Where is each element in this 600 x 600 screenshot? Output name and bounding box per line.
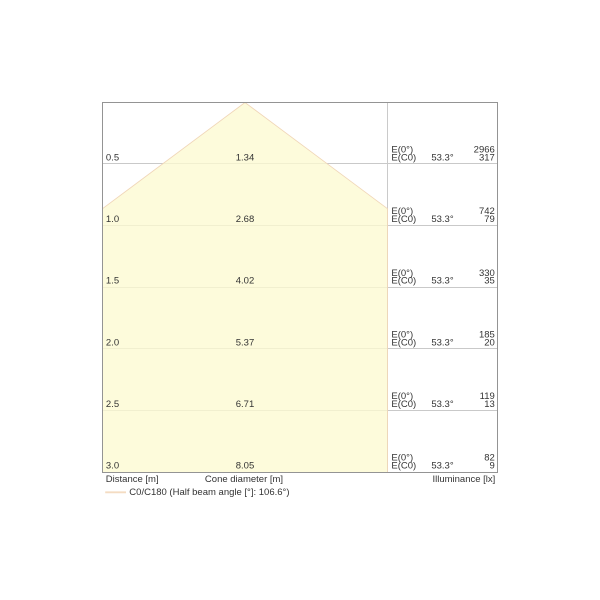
svg-text:2.0: 2.0 bbox=[106, 337, 119, 348]
svg-text:Distance [m]: Distance [m] bbox=[106, 474, 159, 485]
svg-text:1.34: 1.34 bbox=[236, 152, 255, 163]
svg-text:53.3°: 53.3° bbox=[431, 399, 453, 410]
svg-text:E(C0): E(C0) bbox=[391, 214, 416, 225]
svg-text:13: 13 bbox=[484, 399, 495, 410]
svg-text:Cone diameter [m]: Cone diameter [m] bbox=[205, 474, 283, 485]
svg-text:E(C0): E(C0) bbox=[391, 276, 416, 287]
svg-text:79: 79 bbox=[484, 214, 495, 225]
svg-text:1.5: 1.5 bbox=[106, 276, 119, 287]
svg-text:53.3°: 53.3° bbox=[431, 214, 453, 225]
svg-text:53.3°: 53.3° bbox=[431, 152, 453, 163]
svg-text:8.05: 8.05 bbox=[236, 461, 255, 472]
svg-text:6.71: 6.71 bbox=[236, 399, 255, 410]
svg-text:3.0: 3.0 bbox=[106, 461, 119, 472]
svg-text:2.68: 2.68 bbox=[236, 214, 255, 225]
svg-text:53.3°: 53.3° bbox=[431, 337, 453, 348]
svg-text:E(C0): E(C0) bbox=[391, 152, 416, 163]
svg-text:E(C0): E(C0) bbox=[391, 337, 416, 348]
svg-text:E(C0): E(C0) bbox=[391, 399, 416, 410]
svg-text:E(C0): E(C0) bbox=[391, 461, 416, 472]
svg-text:20: 20 bbox=[484, 337, 495, 348]
svg-text:53.3°: 53.3° bbox=[431, 461, 453, 472]
svg-text:5.37: 5.37 bbox=[236, 337, 255, 348]
svg-text:1.0: 1.0 bbox=[106, 214, 119, 225]
svg-text:2.5: 2.5 bbox=[106, 399, 119, 410]
svg-text:317: 317 bbox=[479, 152, 495, 163]
svg-text:0.5: 0.5 bbox=[106, 152, 119, 163]
svg-text:35: 35 bbox=[484, 276, 495, 287]
svg-text:C0/C180 (Half beam angle [°]:: C0/C180 (Half beam angle [°]: 106.6°) bbox=[129, 487, 289, 498]
svg-text:Illuminance [lx]: Illuminance [lx] bbox=[432, 474, 495, 485]
svg-text:9: 9 bbox=[490, 461, 495, 472]
svg-text:53.3°: 53.3° bbox=[431, 276, 453, 287]
svg-text:4.02: 4.02 bbox=[236, 276, 255, 287]
